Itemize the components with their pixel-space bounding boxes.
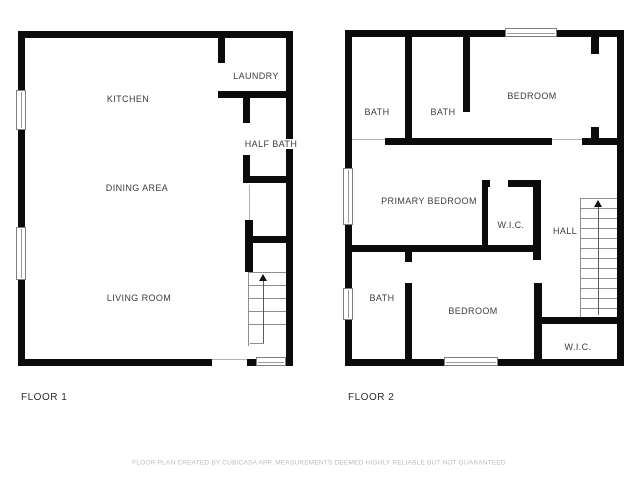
f1-wall-bottom-a	[18, 359, 212, 366]
stair-tread	[581, 248, 617, 249]
stair-tread	[581, 258, 617, 259]
f1-stair-wall-left	[245, 220, 253, 272]
stair-tread	[581, 218, 617, 219]
stair-rail	[248, 272, 249, 346]
f2-midwall-a	[385, 138, 552, 145]
window-pane	[21, 92, 22, 128]
window-pane	[446, 362, 496, 363]
f2-wall-right	[617, 30, 624, 366]
stair-tread	[249, 311, 286, 312]
f1-wall-left-b	[18, 130, 25, 227]
f2-bedroom2-hall-wall	[534, 283, 542, 366]
room-label-living-room: LIVING ROOM	[105, 293, 173, 303]
f2-bedroom1-right-wall-a	[591, 37, 599, 54]
f1-laundry-wall-left	[218, 38, 225, 63]
f1-closet-wall-bottom	[253, 236, 293, 243]
f2-wall-left-b	[345, 225, 352, 288]
f2-door-opening-1	[352, 139, 385, 140]
stair-tread	[581, 198, 617, 199]
f2-lower-midwall	[345, 245, 540, 252]
f1-door-opening-bottom	[212, 359, 247, 360]
f2-midwall-b	[582, 138, 624, 145]
room-label-primary-bedroom: PRIMARY BEDROOM	[379, 196, 479, 206]
f2-wic1-wall-left	[482, 180, 488, 252]
stair-tread	[249, 298, 286, 299]
f2-wall-left-a	[345, 30, 352, 168]
f2-bath3-wall-b	[405, 283, 412, 359]
room-label-bath-2: BATH	[429, 107, 458, 117]
stair-tread	[581, 278, 617, 279]
f2-wall-top-a	[345, 30, 505, 37]
window-pane	[348, 290, 349, 318]
f2-wall-bottom-a	[345, 359, 445, 366]
f2-window-left-2	[343, 288, 353, 320]
stair-direction-line	[250, 343, 264, 344]
room-label-bath-3: BATH	[368, 293, 397, 303]
f1-window-bottom	[256, 357, 286, 366]
f1-wall-bottom-c	[285, 359, 293, 366]
stair-up-arrow-icon	[594, 200, 602, 207]
f1-laundry-wall-bottom	[218, 91, 293, 98]
stair-tread	[581, 208, 617, 209]
stair-tread	[581, 238, 617, 239]
stair-tread	[249, 285, 286, 286]
f2-wall-top-b	[557, 30, 624, 37]
floor-plan-canvas: KITCHEN DINING AREA LIVING ROOM LAUNDRY …	[0, 0, 640, 480]
room-label-laundry: LAUNDRY	[231, 71, 281, 81]
f2-door-opening-2	[552, 139, 582, 140]
room-label-bedroom-1: BEDROOM	[505, 91, 558, 101]
room-label-hall: HALL	[551, 226, 579, 236]
window-pane	[507, 33, 555, 34]
f2-bath3-wall-a	[405, 252, 412, 262]
f2-wall-bottom-b	[497, 359, 624, 366]
window-pane	[258, 362, 284, 363]
window-pane	[348, 170, 349, 223]
room-label-bedroom-2: BEDROOM	[446, 306, 499, 316]
stair-tread	[581, 268, 617, 269]
stair-tread	[581, 288, 617, 289]
f2-window-left-1	[343, 168, 353, 225]
f2-window-bottom	[444, 357, 498, 366]
window-pane	[21, 229, 22, 278]
stair-tread	[581, 308, 617, 309]
f1-window-left-2	[16, 227, 26, 280]
f1-wall-left-c	[18, 280, 25, 366]
floor1-title: FLOOR 1	[21, 392, 67, 403]
f1-halfbath-wall-left-b	[243, 155, 250, 177]
room-label-kitchen: KITCHEN	[105, 94, 151, 104]
floor2-title: FLOOR 2	[348, 392, 394, 403]
disclaimer-watermark: FLOOR PLAN CREATED BY CUBICASA APP. MEAS…	[132, 460, 508, 467]
stair-tread	[249, 324, 286, 325]
f1-wall-top	[18, 31, 293, 38]
f1-window-left-1	[16, 90, 26, 130]
room-label-half-bath: HALF BATH	[243, 139, 299, 149]
stair-up-arrow-icon	[259, 274, 267, 281]
f2-wic2-wall-top	[542, 317, 624, 324]
f1-wall-left-a	[18, 31, 25, 90]
room-label-dining-area: DINING AREA	[104, 183, 170, 193]
f2-bath2-bedroom-wall	[463, 37, 470, 112]
f2-bath-divider-wall	[405, 37, 412, 145]
f1-closet-door-opening	[249, 185, 250, 220]
stair-direction-line	[263, 281, 264, 343]
f1-halfbath-wall-bottom	[243, 176, 293, 183]
stair-tread	[581, 228, 617, 229]
stair-tread	[249, 272, 286, 273]
stair-direction-line	[598, 207, 599, 315]
stair-tread	[581, 298, 617, 299]
f2-window-top	[505, 28, 557, 37]
room-label-wic-2: W.I.C.	[563, 342, 594, 352]
f1-wall-right	[286, 31, 293, 366]
room-label-bath-1: BATH	[363, 107, 392, 117]
f1-halfbath-wall-left-a	[243, 98, 250, 123]
room-label-wic-1: W.I.C.	[496, 220, 527, 230]
